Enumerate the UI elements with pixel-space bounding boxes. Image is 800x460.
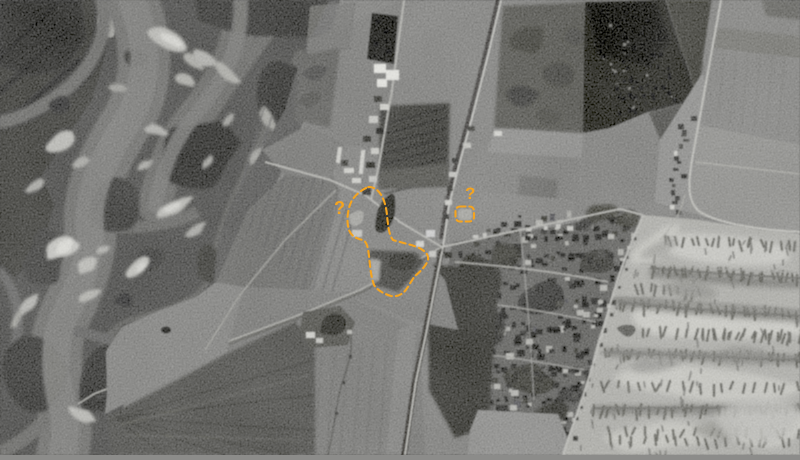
svg-text:?: ? (465, 184, 475, 203)
svg-text:?: ? (334, 198, 345, 218)
